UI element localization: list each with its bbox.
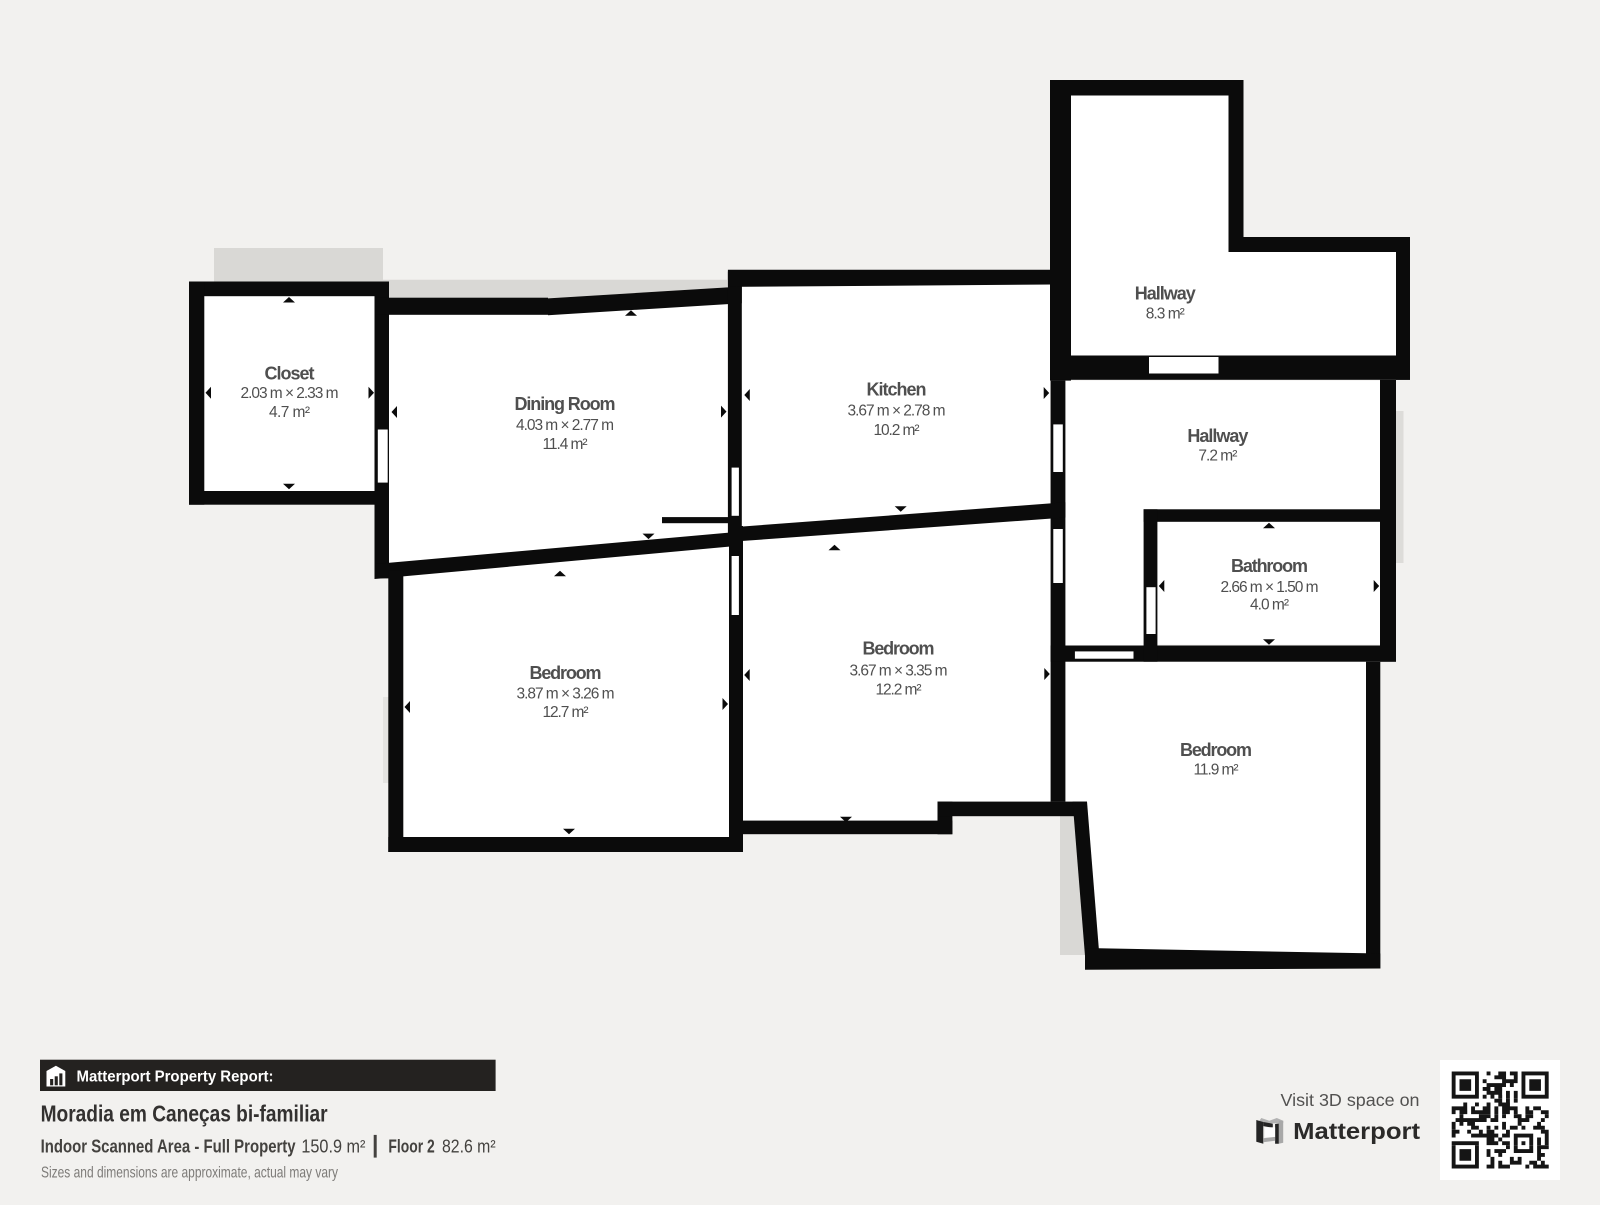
- svg-text:Closet: Closet: [265, 364, 315, 384]
- svg-text:3.67 m × 3.35 m: 3.67 m × 3.35 m: [850, 663, 948, 680]
- svg-text:11.4 m²: 11.4 m²: [543, 436, 588, 453]
- svg-text:Hallway: Hallway: [1187, 426, 1248, 446]
- svg-text:Sizes and dimensions are appro: Sizes and dimensions are approximate, ac…: [41, 1165, 338, 1182]
- svg-text:Matterport: Matterport: [1293, 1118, 1420, 1144]
- svg-text:Dining Room: Dining Room: [515, 394, 616, 414]
- svg-text:Bathroom: Bathroom: [1231, 556, 1308, 576]
- svg-text:2.03 m × 2.33 m: 2.03 m × 2.33 m: [241, 385, 339, 402]
- svg-text:Bedroom: Bedroom: [863, 639, 935, 659]
- svg-text:12.7 m²: 12.7 m²: [543, 704, 589, 721]
- svg-text:150.9 m²: 150.9 m²: [301, 1136, 365, 1156]
- svg-text:Floor 2: Floor 2: [388, 1136, 434, 1156]
- svg-text:3.87 m × 3.26 m: 3.87 m × 3.26 m: [517, 686, 615, 703]
- svg-text:4.0 m²: 4.0 m²: [1250, 596, 1289, 613]
- svg-text:12.2 m²: 12.2 m²: [876, 682, 922, 699]
- svg-text:Kitchen: Kitchen: [867, 379, 927, 399]
- svg-text:Indoor Scanned Area - Full Pro: Indoor Scanned Area - Full Property: [41, 1136, 296, 1156]
- svg-text:4.7 m²: 4.7 m²: [269, 404, 310, 421]
- svg-text:Hallway: Hallway: [1135, 284, 1196, 304]
- svg-text:82.6 m²: 82.6 m²: [442, 1136, 496, 1156]
- svg-text:Bedroom: Bedroom: [530, 663, 602, 683]
- svg-text:3.67 m × 2.78 m: 3.67 m × 2.78 m: [848, 402, 946, 419]
- svg-text:11.9 m²: 11.9 m²: [1194, 761, 1239, 778]
- svg-text:2.66 m × 1.50 m: 2.66 m × 1.50 m: [1221, 579, 1319, 596]
- svg-text:8.3 m²: 8.3 m²: [1146, 306, 1185, 323]
- svg-text:7.2 m²: 7.2 m²: [1198, 448, 1237, 465]
- svg-text:10.2 m²: 10.2 m²: [874, 422, 920, 439]
- svg-text:Bedroom: Bedroom: [1180, 740, 1252, 760]
- svg-text:Moradia em Caneças bi-familiar: Moradia em Caneças bi-familiar: [41, 1101, 328, 1127]
- svg-text:Visit 3D space on: Visit 3D space on: [1281, 1090, 1420, 1110]
- svg-text:4.03 m × 2.77 m: 4.03 m × 2.77 m: [516, 417, 614, 434]
- svg-text:Matterport Property Report:: Matterport Property Report:: [77, 1068, 274, 1085]
